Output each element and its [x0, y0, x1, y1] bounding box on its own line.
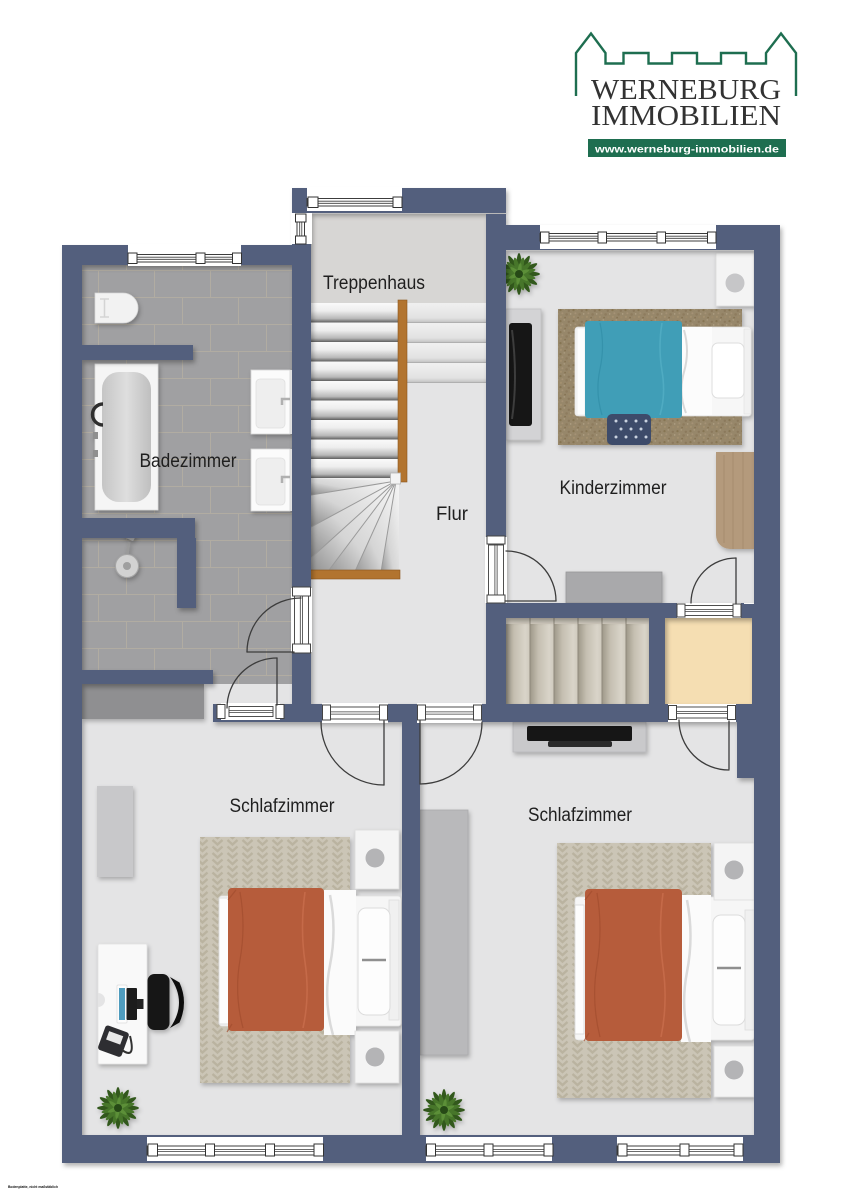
- svg-text:Flur: Flur: [436, 504, 469, 525]
- svg-text:www.werneburg-immobilien.de: www.werneburg-immobilien.de: [594, 145, 780, 156]
- svg-text:Schlafzimmer: Schlafzimmer: [528, 805, 633, 826]
- svg-text:Schlafzimmer: Schlafzimmer: [230, 796, 336, 817]
- svg-text:Bodenplatte, nicht maßstäblich: Bodenplatte, nicht maßstäblich: [8, 1184, 58, 1189]
- svg-text:Treppenhaus: Treppenhaus: [323, 273, 425, 294]
- svg-text:IMMOBILIEN: IMMOBILIEN: [591, 100, 781, 132]
- svg-text:Kinderzimmer: Kinderzimmer: [560, 478, 668, 499]
- svg-text:Badezimmer: Badezimmer: [140, 451, 238, 472]
